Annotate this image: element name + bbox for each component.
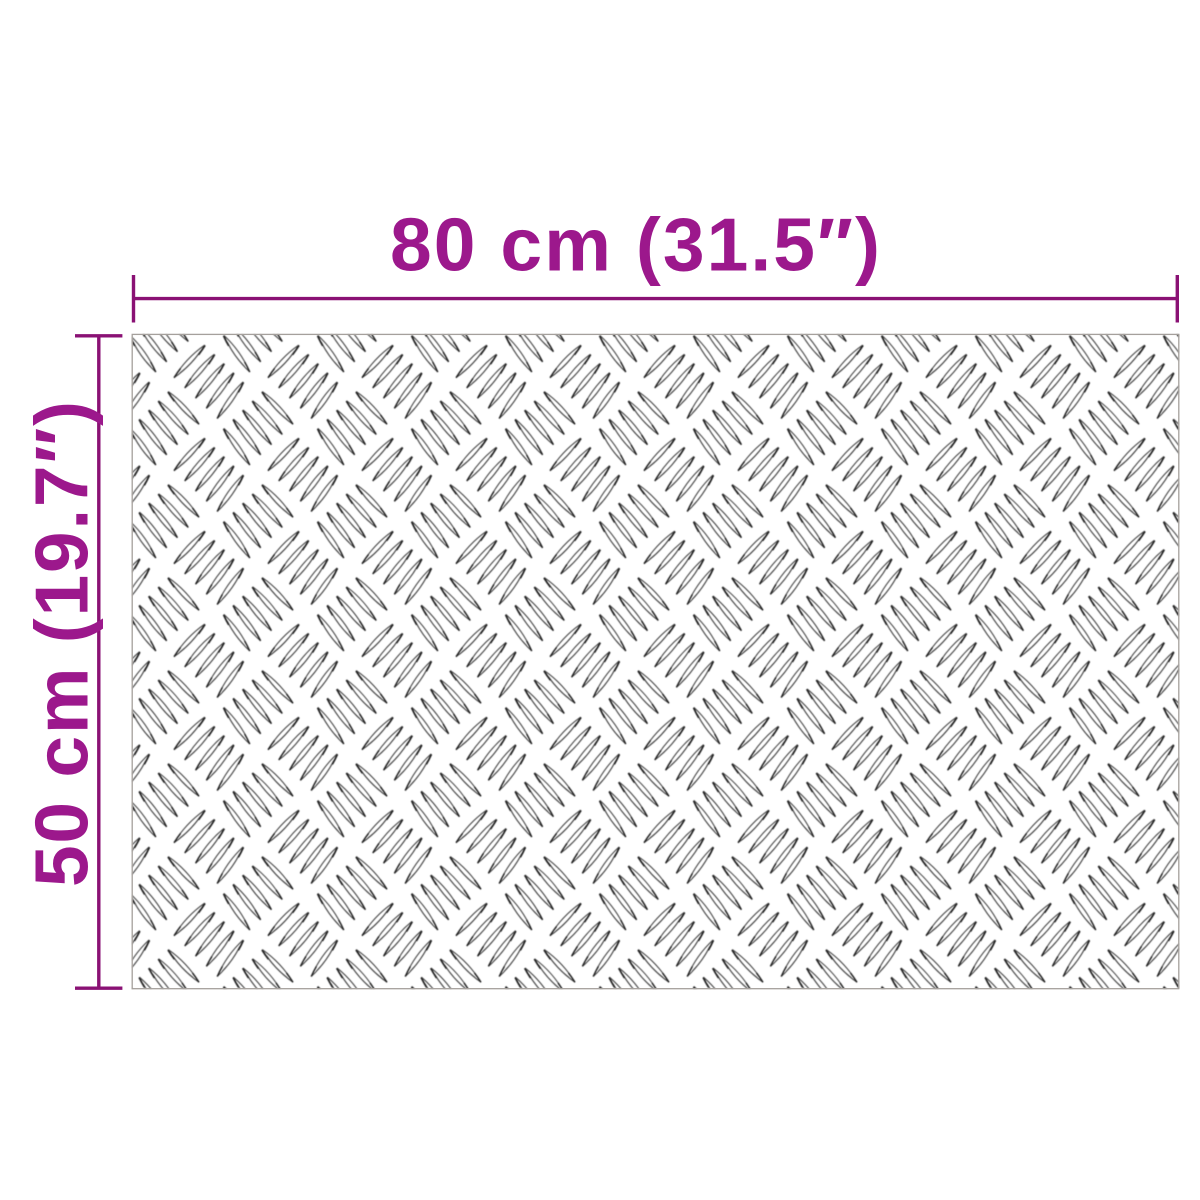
svg-text:50 cm (19.7″): 50 cm (19.7″): [20, 401, 104, 887]
svg-text:80 cm (31.5″): 80 cm (31.5″): [390, 202, 880, 286]
